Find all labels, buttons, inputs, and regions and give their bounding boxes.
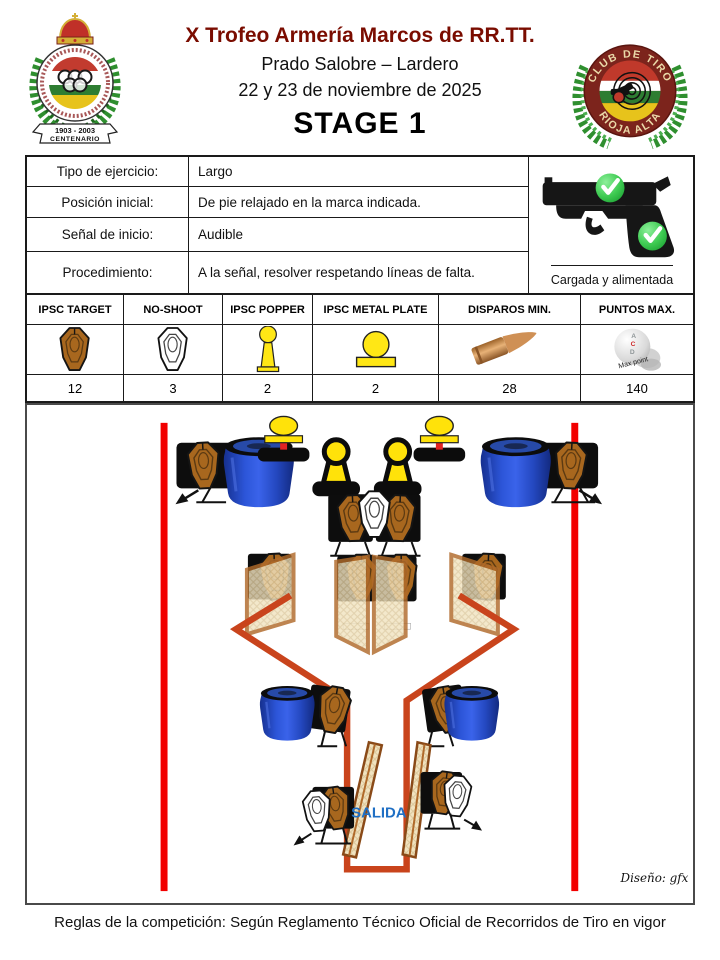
- column-value: 12: [27, 375, 124, 401]
- column-header: IPSC POPPER: [223, 295, 313, 325]
- target-stand: [298, 829, 352, 844]
- info-value: Largo: [189, 157, 529, 187]
- exercise-info-table: Tipo de ejercicio: Largo Cargad: [25, 155, 695, 295]
- info-value: A la señal, resolver respetando líneas d…: [189, 252, 529, 293]
- wall-panel: [336, 557, 368, 652]
- bullet-icon: [458, 326, 562, 374]
- no-shoot-target-icon: [152, 327, 194, 372]
- gun-condition-cell: Cargada y alimentada: [529, 157, 695, 293]
- check-icon: [596, 173, 625, 202]
- popper: [374, 440, 422, 497]
- stage-briefing-page: 1903 - 2003 CENTENARIO CLUB DE TIRO: [0, 0, 720, 960]
- info-value: De pie relajado en la marca indicada.: [189, 187, 529, 218]
- popper: [312, 440, 360, 497]
- popper-icon: [251, 326, 285, 373]
- info-label: Señal de inicio:: [27, 218, 189, 252]
- date-subtitle: 22 y 23 de noviembre de 2025: [0, 80, 720, 101]
- zone-letter-d: D: [630, 349, 635, 356]
- target-stand: [424, 814, 478, 829]
- info-label: Procedimiento:: [27, 252, 189, 293]
- arrow-icon: [175, 493, 188, 504]
- column-header: DISPAROS MIN.: [439, 295, 581, 325]
- metal-plate-icon: [352, 328, 400, 372]
- metal-plate: [258, 416, 310, 461]
- stage-course-diagram: SALIDA Diseño: gfx: [25, 403, 695, 905]
- targets-summary-table: IPSC TARGET NO-SHOOT IPSC POPPER IPSC ME…: [25, 295, 695, 403]
- location-subtitle: Prado Salobre – Lardero: [0, 54, 720, 75]
- column-value: 2: [223, 375, 313, 401]
- target-stand: [330, 542, 420, 556]
- column-header: PUNTOS MAX.: [581, 295, 693, 325]
- barrel: [481, 437, 551, 507]
- barrel: [444, 686, 499, 741]
- column-value: 28: [439, 375, 581, 401]
- gun-caption: Cargada y alimentada: [551, 265, 673, 293]
- check-icon: [638, 222, 667, 251]
- column-value: 3: [124, 375, 223, 401]
- wall-panel: [374, 557, 406, 652]
- ipsc-target-icon: [54, 327, 96, 372]
- column-header: IPSC TARGET: [27, 295, 124, 325]
- column-header: NO-SHOOT: [124, 295, 223, 325]
- metal-plate: [414, 416, 466, 461]
- fault-line-right: [571, 423, 578, 891]
- info-label: Posición inicial:: [27, 187, 189, 218]
- zone-letter-a: A: [631, 333, 636, 340]
- stage-title: STAGE 1: [0, 107, 720, 141]
- info-label: Tipo de ejercicio:: [27, 157, 189, 187]
- barrel: [260, 686, 315, 741]
- arrow-icon: [294, 836, 305, 846]
- info-value: Audible: [189, 218, 529, 252]
- column-value: 2: [313, 375, 439, 401]
- column-header: IPSC METAL PLATE: [313, 295, 439, 325]
- page-title: X Trofeo Armería Marcos de RR.TT.: [0, 24, 720, 48]
- salida-label: SALIDA: [351, 806, 407, 822]
- wall-panel: [451, 555, 498, 634]
- competition-rules-footer: Reglas de la competición: Según Reglamen…: [0, 914, 720, 931]
- column-value: 140: [581, 375, 693, 401]
- score-ball-icon: A C D Max point: [590, 326, 684, 374]
- fault-line-left: [161, 423, 168, 891]
- pistol-icon: [532, 159, 692, 263]
- zone-letter-c: C: [631, 341, 636, 348]
- designer-signature: Diseño: gfx: [620, 871, 689, 885]
